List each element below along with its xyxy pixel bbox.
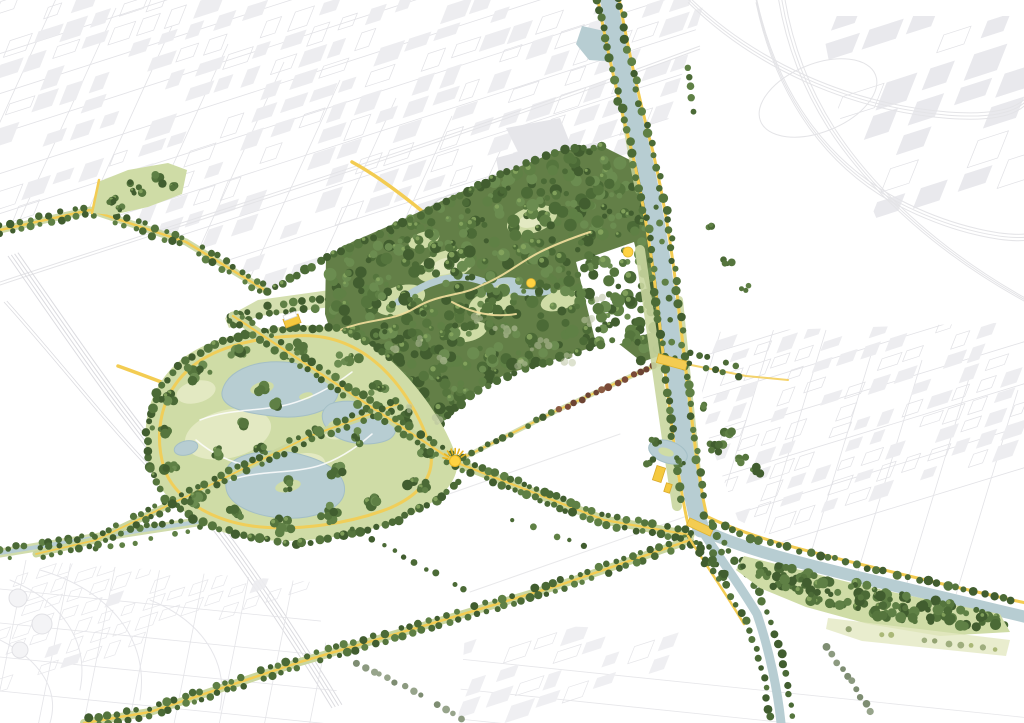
storage-tank: [9, 589, 27, 607]
forest-plaza: [527, 279, 536, 288]
masterplan-map-canvas: [0, 0, 1024, 723]
forest-plaza: [623, 247, 633, 257]
storage-tank: [12, 642, 28, 658]
storage-tank: [32, 614, 52, 634]
masterplan-map: [0, 0, 1024, 723]
